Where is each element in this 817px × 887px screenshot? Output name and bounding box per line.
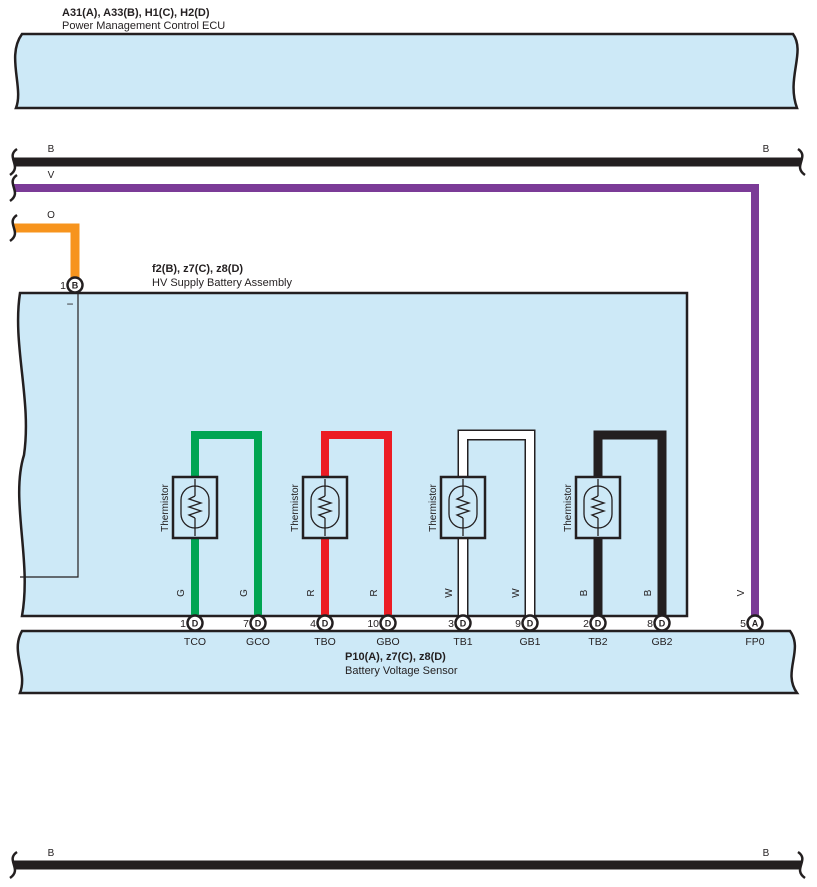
pin-number: 2 — [583, 618, 589, 630]
wire-color-label-o: O — [47, 210, 55, 221]
thermistor-label-1: Thermistor — [160, 483, 171, 531]
pin-wire-color: B — [579, 589, 590, 596]
pin-wire-color: G — [176, 589, 187, 597]
pin-wire-color: B — [643, 589, 654, 596]
sensor-connector-codes: P10(A), z7(C), z8(D) — [345, 651, 446, 663]
thermistor-label-3: Thermistor — [428, 483, 439, 531]
wire-color-label-b-right-bottom: B — [763, 848, 770, 859]
ecu-connector-codes: A31(A), A33(B), H1(C), H2(D) — [62, 7, 210, 19]
connector-letter: D — [527, 619, 534, 629]
minus-label: − — [66, 297, 73, 311]
pin-number: 9 — [515, 618, 521, 630]
terminal-label: TCO — [184, 636, 206, 648]
pin-number: 3 — [448, 618, 454, 630]
connector-letter: D — [322, 619, 329, 629]
wiring-diagram: A31(A), A33(B), H1(C), H2(D) Power Manag… — [0, 0, 817, 887]
pin-number: 1 — [180, 618, 186, 630]
pin-wire-color: R — [306, 589, 317, 596]
wire-orange — [14, 228, 75, 278]
hv-battery-name: HV Supply Battery Assembly — [152, 277, 293, 289]
thermistor-symbol-3 — [441, 477, 485, 538]
wire-color-label-b-right: B — [763, 144, 770, 155]
pin-number: 4 — [310, 618, 316, 630]
terminal-label: GBO — [376, 636, 399, 648]
pin-wire-color: W — [511, 588, 522, 598]
terminal-label: FP0 — [745, 636, 764, 648]
ground-connector-letter: B — [72, 281, 79, 291]
thermistor-symbol-2 — [303, 477, 347, 538]
terminal-label: GCO — [246, 636, 270, 648]
hv-battery-connector-codes: f2(B), z7(C), z8(D) — [152, 263, 243, 275]
pin-wire-color: R — [369, 589, 380, 596]
connector-letter: D — [460, 619, 467, 629]
thermistor-label-4: Thermistor — [563, 483, 574, 531]
thermistor-label-2: Thermistor — [290, 483, 301, 531]
pin-wire-color: V — [736, 589, 747, 596]
ecu-name: Power Management Control ECU — [62, 20, 225, 32]
terminal-label: TBO — [314, 636, 336, 648]
terminal-label: TB1 — [453, 636, 472, 648]
pin-number: 8 — [647, 618, 653, 630]
connector-letter: A — [752, 619, 759, 629]
connector-letter: D — [595, 619, 602, 629]
pin-wire-color: W — [444, 588, 455, 598]
pin-number: 5 — [740, 618, 746, 630]
terminal-label: GB2 — [651, 636, 672, 648]
thermistor-symbol-4 — [576, 477, 620, 538]
wire-color-label-b-left-bottom: B — [48, 848, 55, 859]
sensor-name: Battery Voltage Sensor — [345, 665, 458, 677]
pin-number: 7 — [243, 618, 249, 630]
terminal-label: TB2 — [588, 636, 607, 648]
connector-letter: D — [385, 619, 392, 629]
pin-wire-color: G — [239, 589, 250, 597]
connector-letter: D — [192, 619, 199, 629]
wire-color-label-b-left: B — [48, 144, 55, 155]
pin-number: 10 — [367, 618, 379, 630]
ecu-band — [15, 34, 797, 108]
connector-letter: D — [255, 619, 262, 629]
wire-color-label-v: V — [48, 170, 55, 181]
terminal-label: GB1 — [519, 636, 540, 648]
thermistor-symbol-1 — [173, 477, 217, 538]
wiring-diagram-page: A31(A), A33(B), H1(C), H2(D) Power Manag… — [0, 0, 817, 887]
ground-pin-number: 1 — [60, 280, 66, 292]
connector-letter: D — [659, 619, 666, 629]
hv-battery-box — [18, 293, 687, 616]
